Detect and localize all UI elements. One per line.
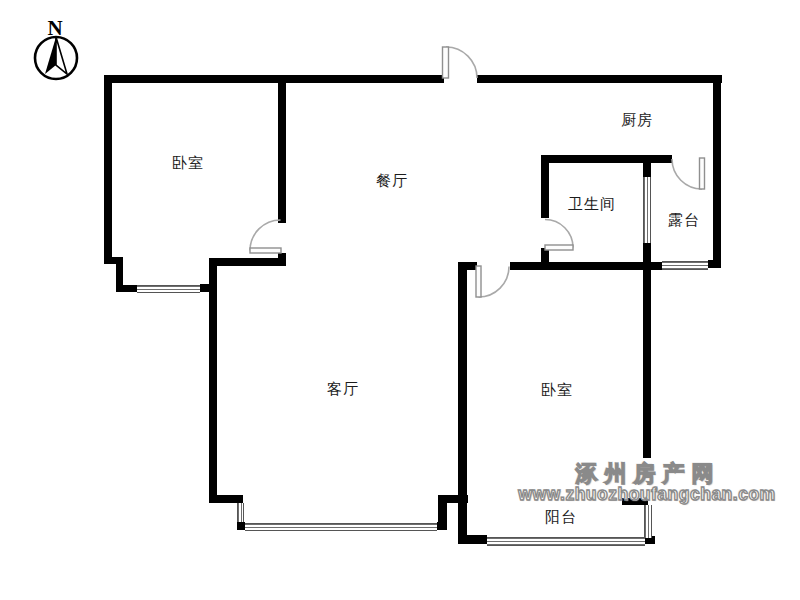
room-label-bedroom-2: 卧室 [541, 381, 573, 400]
bedroom2-door-leaf [476, 266, 481, 297]
floor-plan: N 卧室 餐厅 厨房 卫生间 露台 客厅 卧室 阳台 涿州房产网 www.zhu… [0, 0, 800, 600]
compass: N [35, 16, 77, 79]
door-and-compass-overlay: N [0, 0, 800, 600]
entry-door-leaf [443, 47, 449, 78]
kitchen-door-arc [672, 159, 702, 189]
room-label-bathroom: 卫生间 [568, 195, 616, 214]
entry-door-arc [446, 47, 477, 78]
bathroom-door-arc [545, 220, 573, 248]
bedroom1-door-arc [250, 220, 281, 251]
bedroom2-door-arc [479, 267, 510, 298]
room-label-bedroom-1: 卧室 [172, 154, 204, 173]
room-label-kitchen: 厨房 [621, 111, 653, 130]
watermark-site-url: www.zhuozhoufangchan.com [512, 484, 782, 505]
bedroom1-door-leaf [250, 248, 281, 253]
kitchen-door-leaf [700, 158, 705, 189]
compass-needle-light [56, 37, 67, 74]
compass-needle-dark [45, 37, 56, 74]
room-label-dining: 餐厅 [376, 172, 408, 191]
room-label-living: 客厅 [327, 380, 359, 399]
room-label-terrace: 露台 [668, 211, 700, 230]
room-label-balcony: 阳台 [545, 508, 577, 527]
bathroom-door-leaf [545, 245, 573, 250]
